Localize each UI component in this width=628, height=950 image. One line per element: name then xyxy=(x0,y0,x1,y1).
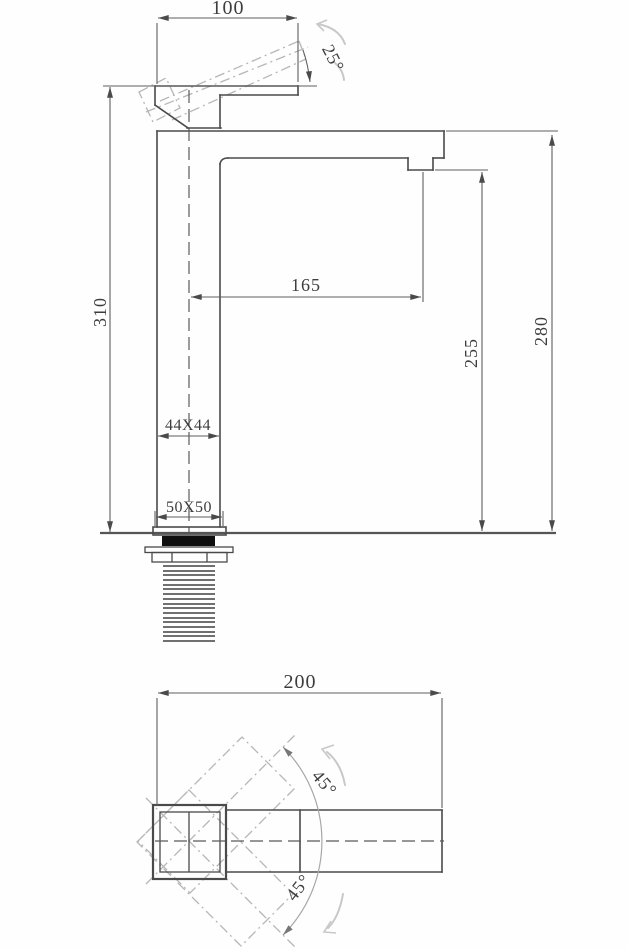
dim-overall-length-label: 200 xyxy=(284,671,317,693)
dimension-spout-reach: 165 xyxy=(191,172,423,302)
handle-swing-arc: 45° 45° xyxy=(282,745,345,935)
dimension-overall-length: 200 xyxy=(157,671,442,808)
dim-spout-reach-label: 165 xyxy=(291,275,321,295)
mounting-washer xyxy=(145,547,233,553)
dim-top-width-label: 100 xyxy=(212,0,245,19)
technical-drawing-page: 100 25° 310 165 255 xyxy=(0,0,628,950)
dim-body-section-label: 44X44 xyxy=(165,417,211,434)
mounting-nut xyxy=(152,553,227,563)
dimension-handle-angle: 25° xyxy=(103,20,349,86)
dim-total-height-label: 310 xyxy=(90,297,110,327)
dimension-aerator-height: 255 xyxy=(435,170,488,531)
side-view: 100 25° 310 165 255 xyxy=(90,0,558,641)
dim-spout-top-height-label: 280 xyxy=(531,316,551,346)
dim-base-section-label: 50X50 xyxy=(166,499,212,516)
handle-lever-outline xyxy=(155,86,298,128)
rubber-gasket xyxy=(162,536,215,546)
plan-outline xyxy=(153,805,444,879)
dimension-base-section: 50X50 xyxy=(155,499,223,526)
dimension-top-width: 100 xyxy=(157,0,298,84)
base-assembly xyxy=(145,527,233,641)
dim-aerator-height-label: 255 xyxy=(461,338,481,368)
body-and-spout-outline xyxy=(157,90,444,532)
dim-handle-angle-label: 25° xyxy=(318,41,349,75)
faucet-dimension-drawing: 100 25° 310 165 255 xyxy=(0,0,628,950)
dimension-total-height: 310 xyxy=(90,87,110,532)
threaded-shank xyxy=(163,566,215,641)
aerator-outline xyxy=(408,158,433,170)
dim-swing-up-label: 45° xyxy=(308,766,341,800)
dimension-body-section: 44X44 xyxy=(158,417,219,436)
dim-swing-down-label: 45° xyxy=(282,870,315,905)
phantom-handle-raised xyxy=(139,41,308,122)
rotation-direction-arrow-down xyxy=(324,894,343,933)
plan-view: 200 45° 45° xyxy=(137,671,444,948)
dimension-spout-top-height: 280 xyxy=(446,131,558,531)
